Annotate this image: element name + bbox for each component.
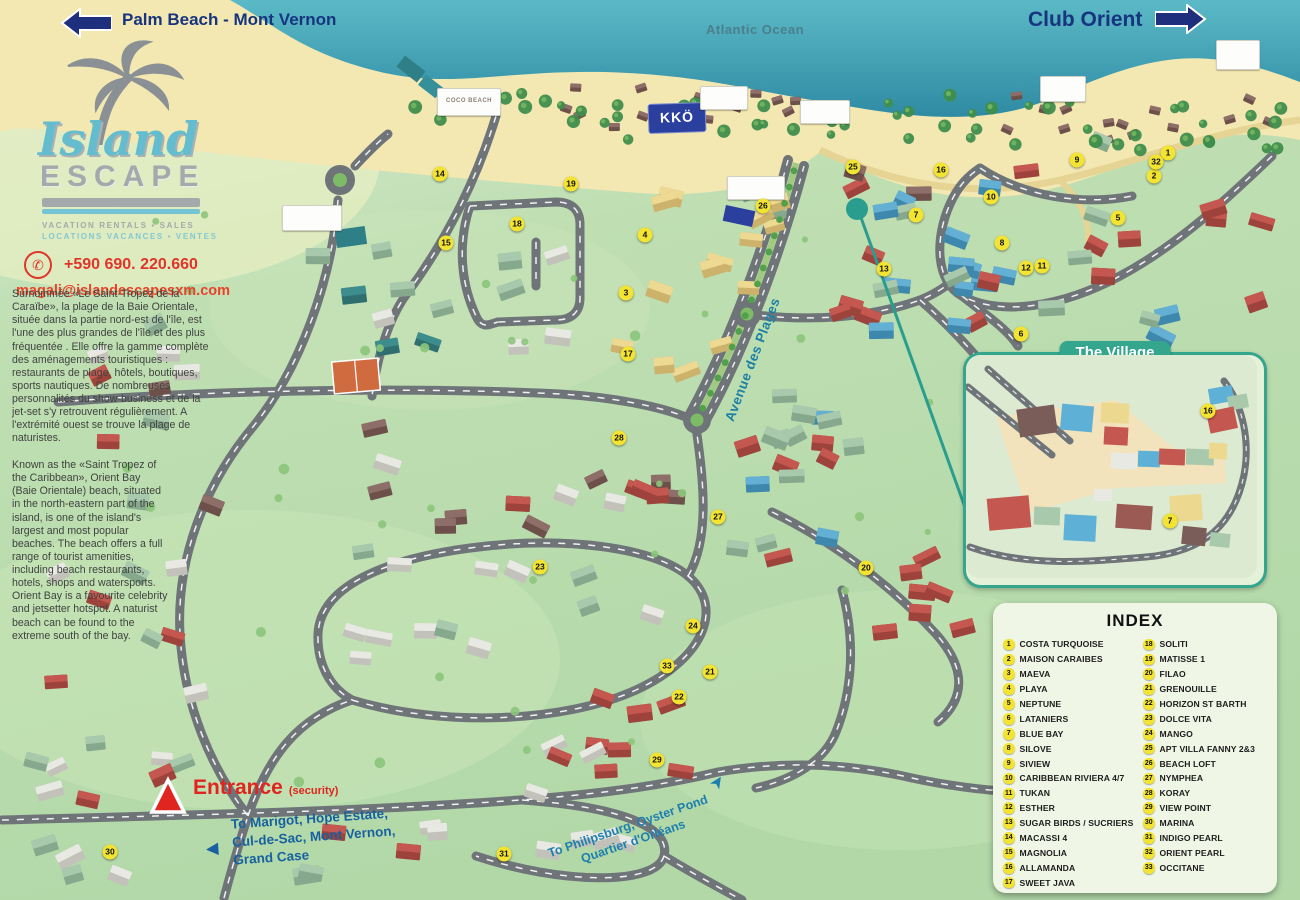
index-entry-label: NYMPHEA — [1160, 773, 1204, 783]
index-entry-label: VIEW POINT — [1160, 803, 1212, 813]
palm-beach-label: Palm Beach - Mont Vernon — [122, 10, 336, 30]
map-marker-11[interactable]: 11 — [1035, 259, 1050, 274]
entrance-label: Entrance(security) — [193, 776, 338, 800]
beach-sign — [727, 176, 785, 200]
index-entry: 26BEACH LOFT — [1143, 756, 1281, 771]
index-panel: INDEX 1COSTA TURQUOISE2MAISON CARAIBES3M… — [993, 603, 1277, 893]
map-marker-12[interactable]: 12 — [1019, 261, 1034, 276]
index-entry-label: ORIENT PEARL — [1160, 848, 1225, 858]
index-entry: 13SUGAR BIRDS / SUCRIERS — [1003, 816, 1141, 831]
index-entry-number: 13 — [1003, 817, 1015, 829]
index-entry-number: 5 — [1003, 698, 1015, 710]
beach-sign — [800, 100, 850, 124]
index-entry: 22HORIZON ST BARTH — [1143, 697, 1281, 712]
index-entry-number: 15 — [1003, 847, 1015, 859]
map-marker-5[interactable]: 5 — [1111, 211, 1126, 226]
beach-sign — [1216, 40, 1260, 70]
index-entry-number: 30 — [1143, 817, 1155, 829]
map-page: Palm Beach - Mont Vernon Atlantic Ocean … — [0, 0, 1300, 900]
description-french: Surnommée «Le Saint-Tropez de la Caraïbe… — [12, 288, 214, 446]
index-entry-number: 32 — [1143, 847, 1155, 859]
index-entry-label: MACASSI 4 — [1020, 833, 1068, 843]
beach-sign — [1040, 76, 1086, 102]
index-entry-number: 4 — [1003, 683, 1015, 695]
index-entry: 10CARIBBEAN RIVIERA 4/7 — [1003, 771, 1141, 786]
index-entry: 7BLUE BAY — [1003, 726, 1141, 741]
index-column-left: 1COSTA TURQUOISE2MAISON CARAIBES3MAEVA4P… — [1003, 637, 1141, 890]
index-entry: 11TUKAN — [1003, 786, 1141, 801]
index-entry: 4PLAYA — [1003, 682, 1141, 697]
map-marker-30[interactable]: 30 — [103, 845, 118, 860]
index-entry-number: 27 — [1143, 773, 1155, 785]
index-entry-number: 11 — [1003, 788, 1015, 800]
index-entry: 25APT VILLA FANNY 2&3 — [1143, 741, 1281, 756]
index-entry: 3MAEVA — [1003, 667, 1141, 682]
village-inset: The Village — [963, 352, 1267, 588]
index-entry-label: KORAY — [1160, 788, 1191, 798]
map-marker-6[interactable]: 6 — [1014, 327, 1029, 342]
map-marker-19[interactable]: 19 — [564, 177, 579, 192]
index-entry-number: 6 — [1003, 713, 1015, 725]
map-marker-13[interactable]: 13 — [877, 262, 892, 277]
map-marker-28[interactable]: 28 — [612, 431, 627, 446]
index-entry-label: SIVIEW — [1020, 759, 1051, 769]
index-entry-number: 26 — [1143, 758, 1155, 770]
index-entry-label: BEACH LOFT — [1160, 759, 1216, 769]
map-marker-3[interactable]: 3 — [619, 286, 634, 301]
index-entry-number: 8 — [1003, 743, 1015, 755]
index-entry: 2MAISON CARAIBES — [1003, 652, 1141, 667]
index-entry: 32ORIENT PEARL — [1143, 845, 1281, 860]
brand-bar — [42, 198, 200, 207]
village-mini-map — [966, 355, 1257, 578]
index-entry-number: 19 — [1143, 654, 1155, 666]
index-entry: 23DOLCE VITA — [1143, 711, 1281, 726]
index-column-right: 18SOLITI19MATISSE 120FILAO21GRENOUILLE22… — [1143, 637, 1281, 875]
index-entry: 8SILOVE — [1003, 741, 1141, 756]
index-entry-number: 9 — [1003, 758, 1015, 770]
map-marker-25[interactable]: 25 — [846, 160, 861, 175]
map-marker-10[interactable]: 10 — [984, 190, 999, 205]
index-entry-number: 29 — [1143, 802, 1155, 814]
entrance-word: Entrance — [193, 776, 283, 799]
index-entry: 24MANGO — [1143, 726, 1281, 741]
index-entry: 17SWEET JAVA — [1003, 875, 1141, 890]
description-english: Known as the «Saint Tropez of the Caribb… — [12, 459, 168, 643]
map-marker-22[interactable]: 22 — [672, 690, 687, 705]
map-marker-33[interactable]: 33 — [660, 659, 675, 674]
brand-block: Island ESCAPE VACATION RENTALS ▪ SALES L… — [10, 40, 240, 299]
map-marker-18[interactable]: 18 — [510, 217, 525, 232]
index-entry-label: MARINA — [1160, 818, 1195, 828]
index-entry: 29VIEW POINT — [1143, 801, 1281, 816]
map-marker-4[interactable]: 4 — [638, 228, 653, 243]
beach-sign — [282, 205, 342, 231]
index-entry-number: 20 — [1143, 668, 1155, 680]
index-entry-number: 3 — [1003, 668, 1015, 680]
index-entry-number: 17 — [1003, 877, 1015, 889]
index-entry: 6LATANIERS — [1003, 711, 1141, 726]
phone-icon: ✆ — [24, 251, 52, 279]
map-marker-14[interactable]: 14 — [433, 167, 448, 182]
arrow-left-icon — [60, 8, 112, 38]
phone-number: +590 690. 220.660 — [64, 256, 198, 274]
index-entry-number: 14 — [1003, 832, 1015, 844]
index-entry-label: MAISON CARAIBES — [1020, 654, 1103, 664]
brand-bar — [42, 209, 200, 214]
atlantic-ocean-label: Atlantic Ocean — [706, 22, 804, 37]
index-entry-number: 31 — [1143, 832, 1155, 844]
kko-beach-sign: KKÖ — [647, 102, 706, 134]
index-entry-label: INDIGO PEARL — [1160, 833, 1223, 843]
index-entry-label: TUKAN — [1020, 788, 1051, 798]
map-marker-21[interactable]: 21 — [703, 665, 718, 680]
index-entry-number: 1 — [1003, 639, 1015, 651]
index-entry-label: ALLAMANDA — [1020, 863, 1076, 873]
map-marker-27[interactable]: 27 — [711, 510, 726, 525]
map-marker-24[interactable]: 24 — [686, 619, 701, 634]
index-entry-label: HORIZON ST BARTH — [1160, 699, 1247, 709]
index-entry: 15MAGNOLIA — [1003, 845, 1141, 860]
map-marker-16[interactable]: 16 — [934, 163, 949, 178]
map-marker-8[interactable]: 8 — [995, 236, 1010, 251]
to-marigot-label: ◀ To Marigot, Hope Estate, Cul-de-Sac, M… — [230, 804, 397, 870]
index-entry-number: 2 — [1003, 654, 1015, 666]
coco-beach-sign: COCO BEACH — [437, 88, 501, 116]
index-entry: 21GRENOUILLE — [1143, 682, 1281, 697]
index-entry-label: NEPTUNE — [1020, 699, 1062, 709]
brand-name-island: Island — [38, 112, 240, 166]
index-entry-label: BLUE BAY — [1020, 729, 1064, 739]
index-entry: 27NYMPHEA — [1143, 771, 1281, 786]
tennis-court — [332, 358, 381, 394]
tagline-fr: LOCATIONS VACANCES ▪ VENTES — [42, 232, 240, 241]
map-marker-29[interactable]: 29 — [650, 753, 665, 768]
map-marker-17[interactable]: 17 — [621, 347, 636, 362]
index-entry-number: 25 — [1143, 743, 1155, 755]
index-entry-number: 24 — [1143, 728, 1155, 740]
index-entry-label: MANGO — [1160, 729, 1193, 739]
map-marker-32[interactable]: 32 — [1149, 155, 1164, 170]
club-orient-label: Club Orient — [1028, 8, 1142, 32]
index-entry: 30MARINA — [1143, 816, 1281, 831]
index-entry-number: 12 — [1003, 802, 1015, 814]
index-entry: 1COSTA TURQUOISE — [1003, 637, 1141, 652]
index-entry-number: 33 — [1143, 862, 1155, 874]
brand-name-escape: ESCAPE — [40, 160, 240, 194]
security-word: (security) — [289, 785, 339, 797]
map-marker-31[interactable]: 31 — [497, 847, 512, 862]
index-entry-label: SILOVE — [1020, 744, 1052, 754]
index-entry-label: SUGAR BIRDS / SUCRIERS — [1020, 818, 1134, 828]
index-entry: 12ESTHER — [1003, 801, 1141, 816]
index-entry-label: LATANIERS — [1020, 714, 1069, 724]
map-marker-26[interactable]: 26 — [756, 199, 771, 214]
index-entry-label: FILAO — [1160, 669, 1186, 679]
index-entry: 9SIVIEW — [1003, 756, 1141, 771]
index-entry: 16ALLAMANDA — [1003, 860, 1141, 875]
index-entry-number: 7 — [1003, 728, 1015, 740]
map-marker-9[interactable]: 9 — [1070, 153, 1085, 168]
west-direction-icon: ◀ — [206, 839, 219, 860]
index-entry-number: 23 — [1143, 713, 1155, 725]
index-entry: 5NEPTUNE — [1003, 697, 1141, 712]
index-entry-label: DOLCE VITA — [1160, 714, 1212, 724]
index-entry-label: SOLITI — [1160, 639, 1188, 649]
phone-row: ✆ +590 690. 220.660 — [24, 251, 240, 279]
map-marker-20[interactable]: 20 — [859, 561, 874, 576]
index-entry: 19MATISSE 1 — [1143, 652, 1281, 667]
index-entry-label: ESTHER — [1020, 803, 1055, 813]
arrow-right-icon — [1155, 4, 1207, 34]
map-marker-7[interactable]: 7 — [909, 208, 924, 223]
index-entry-number: 28 — [1143, 788, 1155, 800]
index-entry-number: 21 — [1143, 683, 1155, 695]
index-entry-label: APT VILLA FANNY 2&3 — [1160, 744, 1256, 754]
map-marker-16[interactable]: 16 — [1201, 404, 1216, 419]
index-entry-label: MAGNOLIA — [1020, 848, 1068, 858]
index-entry-label: CARIBBEAN RIVIERA 4/7 — [1020, 773, 1125, 783]
beach-sign — [700, 86, 748, 110]
index-title: INDEX — [993, 611, 1277, 631]
map-marker-7[interactable]: 7 — [1163, 514, 1178, 529]
index-entry: 33OCCITANE — [1143, 860, 1281, 875]
map-marker-2[interactable]: 2 — [1147, 169, 1162, 184]
index-entry-label: COSTA TURQUOISE — [1020, 639, 1104, 649]
index-entry-number: 10 — [1003, 773, 1015, 785]
index-entry-number: 16 — [1003, 862, 1015, 874]
index-entry-label: GRENOUILLE — [1160, 684, 1217, 694]
index-entry: 14MACASSI 4 — [1003, 831, 1141, 846]
index-entry: 20FILAO — [1143, 667, 1281, 682]
map-marker-15[interactable]: 15 — [439, 236, 454, 251]
index-entry-label: MATISSE 1 — [1160, 654, 1206, 664]
index-entry-number: 18 — [1143, 639, 1155, 651]
index-entry: 18SOLITI — [1143, 637, 1281, 652]
map-marker-23[interactable]: 23 — [533, 560, 548, 575]
index-entry: 31INDIGO PEARL — [1143, 831, 1281, 846]
index-entry: 28KORAY — [1143, 786, 1281, 801]
index-entry-label: SWEET JAVA — [1020, 878, 1076, 888]
index-entry-label: OCCITANE — [1160, 863, 1205, 873]
tagline-en: VACATION RENTALS ▪ SALES — [42, 221, 240, 230]
index-entry-number: 22 — [1143, 698, 1155, 710]
index-entry-label: PLAYA — [1020, 684, 1048, 694]
index-entry-label: MAEVA — [1020, 669, 1051, 679]
